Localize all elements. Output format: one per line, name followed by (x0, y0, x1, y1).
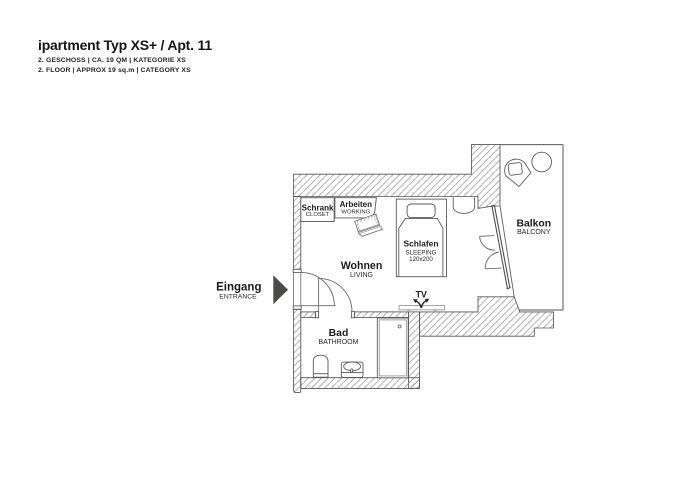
svg-text:BALCONY: BALCONY (517, 229, 551, 236)
svg-text:120x200: 120x200 (409, 256, 433, 263)
svg-text:BATHROOM: BATHROOM (319, 339, 359, 346)
svg-text:Schlafen: Schlafen (404, 239, 439, 249)
svg-text:Arbeiten: Arbeiten (340, 200, 373, 209)
svg-text:Wohnen: Wohnen (341, 260, 383, 272)
svg-text:CLOSET: CLOSET (306, 212, 330, 218)
svg-text:Balkon: Balkon (516, 218, 551, 229)
svg-text:WORKING: WORKING (341, 209, 370, 215)
svg-text:Eingang: Eingang (216, 282, 261, 294)
svg-text:LIVING: LIVING (350, 272, 373, 279)
svg-text:Schrank: Schrank (302, 203, 334, 212)
svg-text:TV: TV (416, 290, 427, 300)
svg-text:ENTRANCE: ENTRANCE (219, 294, 257, 301)
svg-text:Bad: Bad (329, 328, 349, 339)
